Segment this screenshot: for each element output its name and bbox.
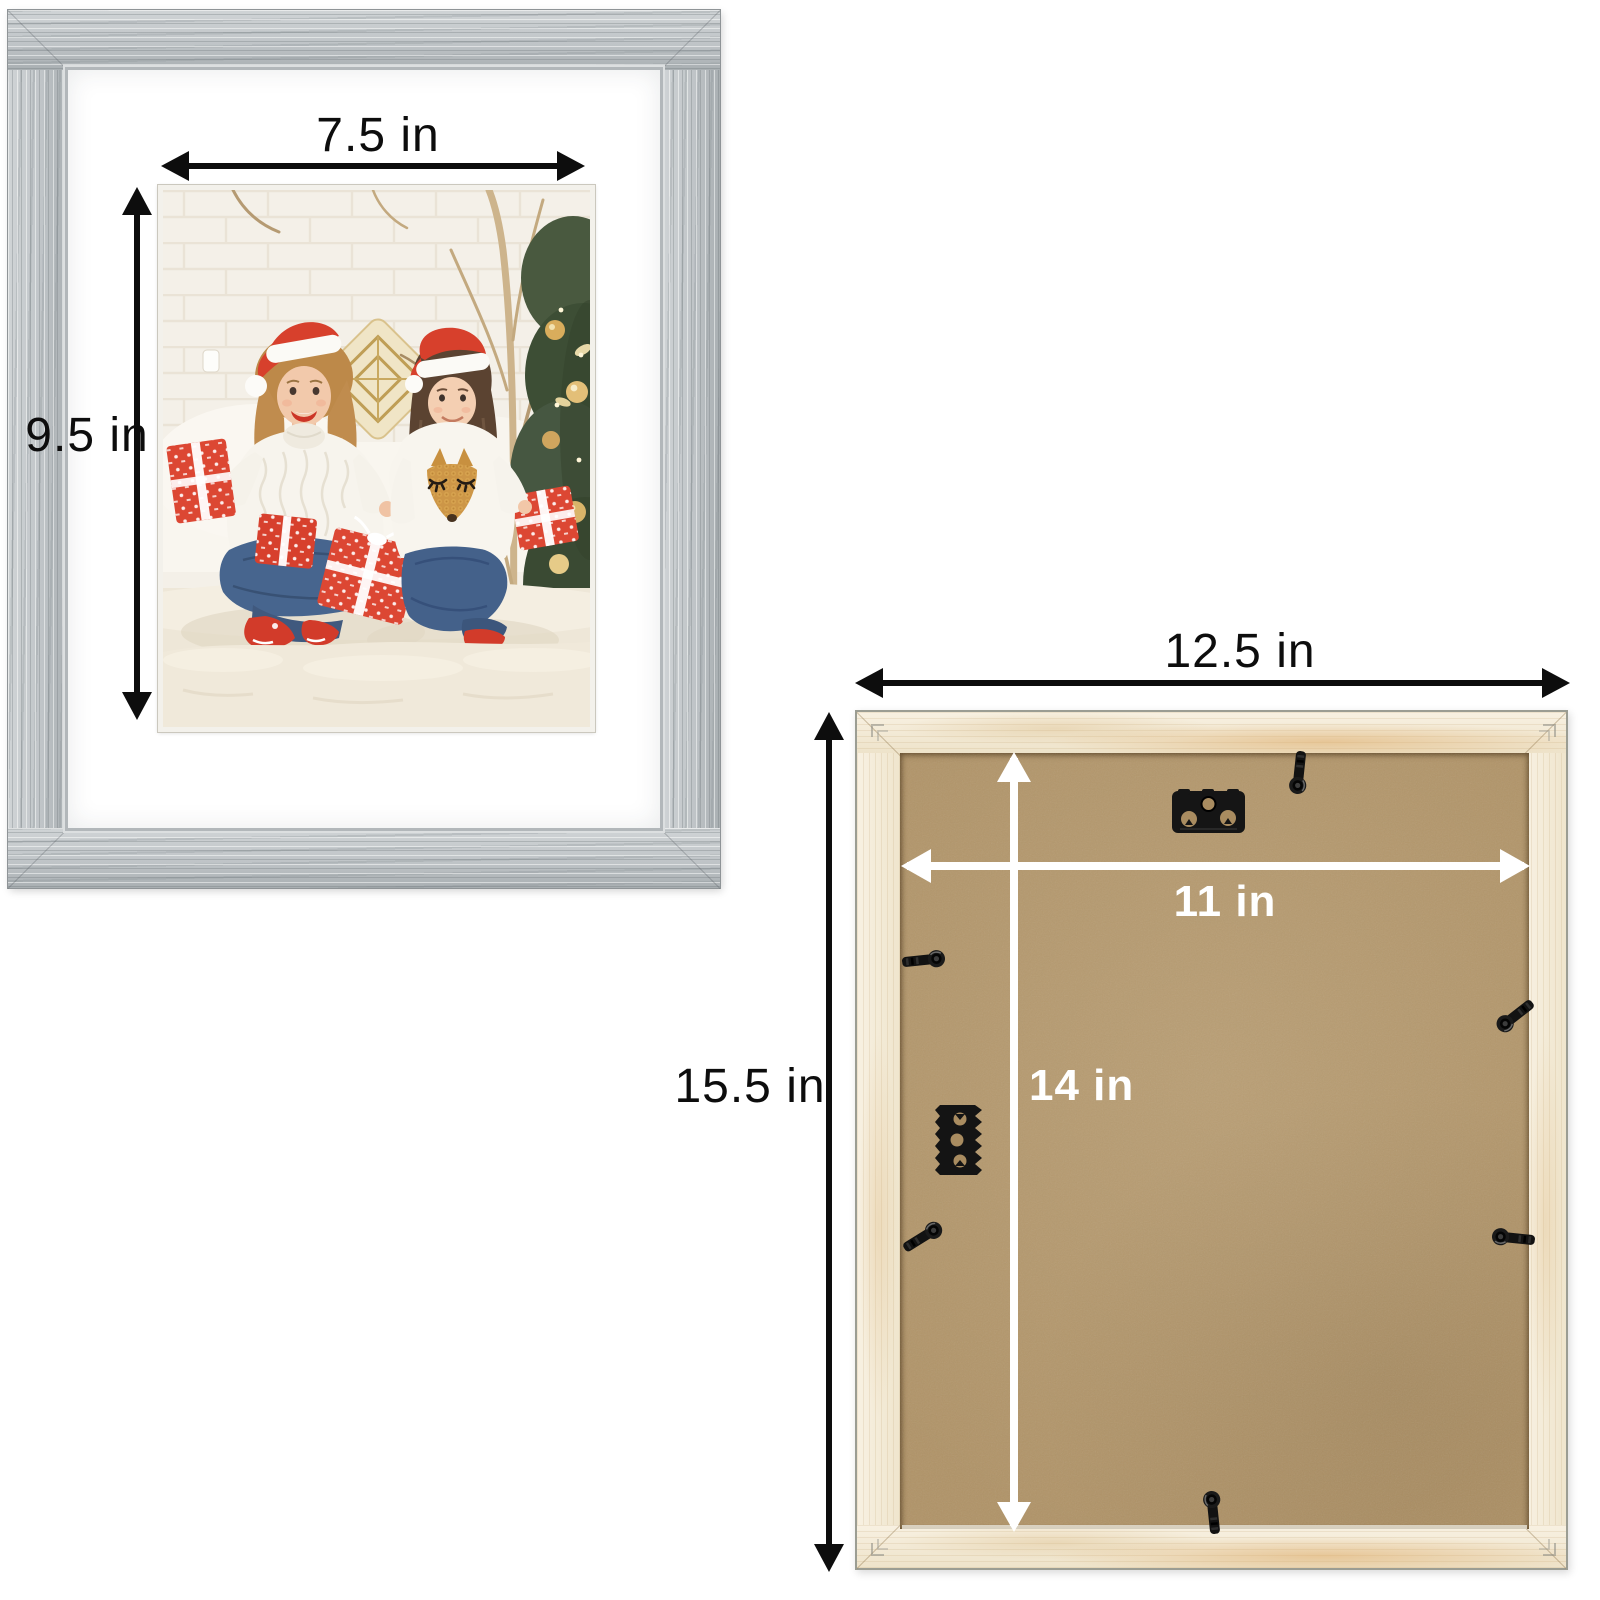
product-dimension-diagram: 7.5 in 9.5 in [0, 0, 1600, 1600]
front-height-arrow [121, 187, 153, 720]
v-nail-icon [1536, 1536, 1558, 1558]
board-height-label: 14 in [1029, 1064, 1199, 1108]
back-height-arrow [813, 712, 845, 1572]
sawtooth-hanger-plate-icon [1172, 789, 1245, 834]
front-frame-bottom-molding [8, 828, 720, 888]
front-width-arrow [161, 150, 585, 182]
arrow-head-right-icon [1500, 849, 1530, 883]
v-nail-icon [1536, 722, 1558, 744]
photo [163, 190, 590, 727]
board-height-arrow [998, 752, 1030, 1532]
arrow-head-up-icon [814, 712, 844, 740]
arrow-line [134, 193, 140, 714]
arrow-head-right-icon [557, 151, 585, 181]
sawtooth-hanger-side-icon [935, 1105, 982, 1175]
photo-foreground-rug [163, 642, 590, 727]
arrow-head-right-icon [1542, 668, 1570, 698]
back-width-arrow [855, 667, 1570, 699]
arrow-head-down-icon [997, 1502, 1031, 1532]
arrow-line [1010, 758, 1018, 1526]
back-frame-top-rail [857, 712, 1566, 753]
front-frame-top-molding [8, 10, 720, 70]
arrow-head-up-icon [997, 752, 1031, 782]
christmas-photo-illustration [163, 190, 590, 727]
photo-wall-sconce [203, 350, 219, 372]
arrow-head-left-icon [161, 151, 189, 181]
arrow-line [861, 680, 1564, 686]
arrow-head-left-icon [855, 668, 883, 698]
v-nail-icon [869, 1536, 891, 1558]
photo-opening [158, 185, 595, 732]
arrow-head-up-icon [122, 187, 152, 215]
back-frame: 11 in 14 in [855, 710, 1568, 1570]
back-frame-left-rail [857, 712, 900, 1568]
arrow-head-down-icon [814, 1544, 844, 1572]
v-nail-icon [869, 722, 891, 744]
front-frame-right-molding [660, 10, 720, 888]
arrow-head-down-icon [122, 692, 152, 720]
board-width-label: 11 in [1145, 880, 1305, 924]
back-frame-right-rail [1525, 712, 1566, 1568]
arrow-line [167, 163, 579, 169]
arrow-head-left-icon [901, 849, 931, 883]
arrow-line [826, 718, 832, 1566]
